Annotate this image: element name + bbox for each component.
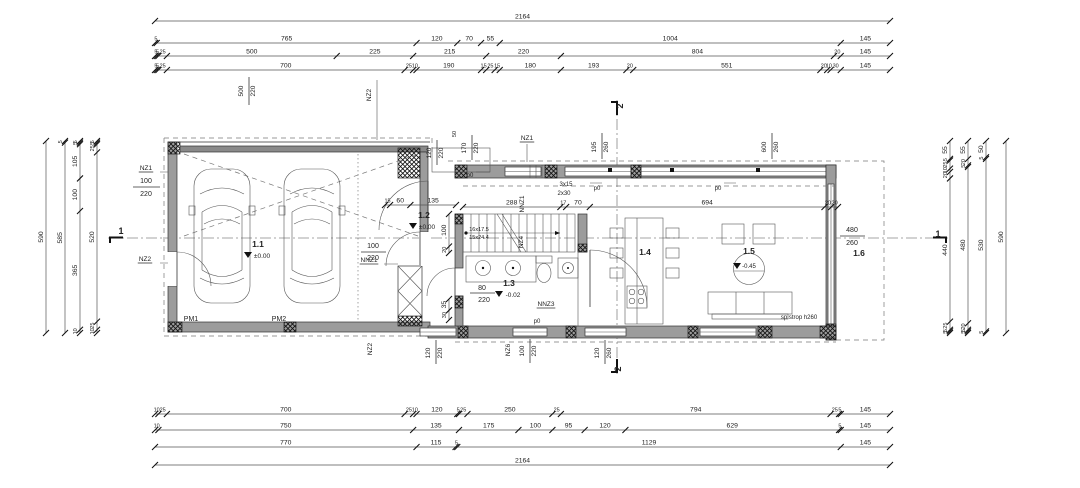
room-label-garage: 1.1 (252, 239, 264, 249)
plan-label: 220 (438, 147, 445, 158)
dim-label: 105 (72, 155, 79, 167)
step-note: 3x15 (559, 182, 573, 188)
dim-label: 135 (428, 198, 440, 205)
dim-label: 5 (58, 140, 64, 143)
dim-label: 480 (960, 239, 967, 251)
dim-label: 5 (838, 424, 841, 430)
dim-label: 145 (860, 49, 872, 56)
section-mark-2-top: 2 (615, 103, 625, 108)
parking-label-2: PM2 (272, 316, 287, 323)
dim-label: 288 (506, 200, 518, 207)
ceiling-note: sp.strop h260 (781, 315, 818, 321)
plan-label: 220 (473, 142, 480, 153)
room-level: ±0.00 (254, 253, 271, 260)
dim-label: 700 (280, 63, 292, 70)
chair (666, 248, 679, 258)
dim-label: 25 (90, 323, 96, 329)
dim-label: 5 (455, 441, 458, 447)
dim-label: 215 (444, 49, 456, 56)
dim-label: 25 (554, 408, 560, 414)
plan-label: 220 (478, 297, 490, 304)
plan-label: 220 (140, 191, 152, 198)
dim-label: 20 (943, 172, 949, 178)
dim-label: 35 (441, 301, 448, 309)
dim-label: 590 (998, 231, 1005, 243)
floor-plan-canvas: 2164576512070551004145552550022521522080… (0, 0, 1080, 488)
dim-label: 585 (57, 232, 64, 244)
dim-label: 25 (160, 408, 166, 414)
dim-label: 5 (154, 37, 157, 43)
dim-label: 145 (860, 63, 872, 70)
plan-label: 220 (437, 347, 444, 358)
opening-label-nz1-top: NZ1 (521, 135, 534, 142)
plan-label: 120 (594, 347, 601, 358)
dim-label: 750 (280, 423, 292, 430)
opening-label-nz1-left: NZ1 (140, 165, 153, 172)
dim-label: 551 (721, 63, 733, 70)
step-note: 2x30 (557, 191, 571, 197)
chair (610, 228, 623, 238)
dim-label: 55 (487, 36, 495, 43)
bath-counter (466, 256, 536, 282)
dim-label: 25 (90, 145, 96, 151)
door-swing-bath (427, 268, 455, 296)
dim-label: 20 (825, 201, 831, 207)
car-2 (279, 169, 345, 303)
dim-label: 120 (431, 407, 443, 414)
dim-label: 1004 (663, 36, 678, 43)
plan-label: 480 (846, 227, 858, 234)
dim-label: 520 (89, 231, 96, 243)
room-label-entry: 1.2 (418, 210, 430, 220)
plan-label: 100 (367, 243, 379, 250)
dim-label: 25 (943, 323, 949, 329)
level-mark: p0 (534, 319, 541, 325)
dim-label: 50 (978, 145, 985, 153)
dim-label: 15 (384, 199, 390, 205)
dim-label: 145 (860, 440, 872, 447)
dim-label: 100 (441, 224, 448, 236)
plan-label: 260 (773, 141, 780, 152)
dim-label: 30 (833, 64, 839, 70)
dim-label: 10 (412, 408, 418, 414)
level-mark: p0 (715, 186, 722, 192)
dim-label: 530 (978, 239, 985, 251)
plan-label: 500 (238, 85, 245, 96)
floor-plan-svg: 2164576512070551004145552550022521522080… (0, 0, 1080, 488)
plan-label: 220 (531, 345, 538, 356)
plan-label: 600 (761, 141, 768, 152)
dim-label: 175 (483, 423, 495, 430)
toilet (537, 264, 551, 283)
opening-label-nz4: NZ4 (518, 235, 525, 248)
chair (666, 228, 679, 238)
dim-label: 25 (460, 408, 466, 414)
column-nnz1 (398, 266, 422, 316)
dim-label: 5 (90, 142, 96, 145)
dim-label: 15 (481, 64, 487, 70)
dim-label: 2164 (515, 458, 530, 465)
dim-label: 804 (692, 49, 704, 56)
parking-label-1: PM1 (184, 316, 199, 323)
dim-label: 15 (494, 64, 500, 70)
dim-label: 1129 (642, 440, 657, 447)
stair-note: 15x24.4 (469, 235, 489, 241)
dim-label: 60 (396, 198, 404, 205)
dim-label: 95 (565, 423, 573, 430)
dim-label: 5 (979, 331, 985, 334)
dim-label: 770 (280, 440, 292, 447)
dim-label: 180 (525, 63, 537, 70)
room-level: -0.02 (506, 292, 521, 299)
plan-label: 50 (452, 131, 458, 137)
dim-label: 629 (727, 423, 739, 430)
plan-label: 80 (478, 285, 486, 292)
plan-label: 260 (603, 141, 610, 152)
room-label-dining: 1.4 (639, 247, 651, 257)
dim-label: 10 (412, 64, 418, 70)
level-mark: p0 (594, 186, 601, 192)
dim-label: 500 (246, 49, 258, 56)
plan-label: 220 (367, 255, 379, 262)
plan-label: 220 (250, 85, 257, 96)
plan-label: 170 (461, 142, 468, 153)
room-label-bath: 1.3 (503, 278, 515, 288)
dim-label: 2164 (515, 14, 530, 21)
level-flag (244, 223, 741, 297)
dim-label: 250 (504, 407, 516, 414)
dim-label: 70 (465, 36, 473, 43)
opening-label-nz6: NZ6 (505, 343, 512, 356)
opening-label-nz2-top: NZ2 (366, 88, 373, 101)
annotation-lines (133, 77, 865, 364)
plan-label: 260 (846, 240, 858, 247)
dim-label: 145 (860, 407, 872, 414)
dim-label: 135 (430, 423, 442, 430)
dim-label: 5 (838, 408, 841, 414)
dim-label: 225 (369, 49, 381, 56)
dim-label: 5 (943, 158, 949, 161)
opening-label-nnz3: NNZ3 (538, 301, 555, 308)
dim-label: 100 (72, 189, 79, 201)
dim-label: 30 (442, 312, 448, 318)
dim-label: 25 (160, 50, 166, 56)
plan-label: 100 (519, 345, 526, 356)
dim-label: 25 (943, 162, 949, 168)
dim-label: 25 (832, 408, 838, 414)
garage-door-swing (184, 154, 418, 236)
room-level: ±0.00 (419, 224, 436, 231)
dim-label: 120 (431, 36, 443, 43)
dim-label: 220 (518, 49, 530, 56)
room-label-living: 1.5 (743, 246, 755, 256)
door-swing-living (590, 250, 647, 307)
dim-label: 794 (690, 407, 702, 414)
dim-label: 145 (860, 423, 872, 430)
door-swing-nnz1 (386, 232, 420, 266)
room-label-terrace: 1.6 (853, 248, 865, 258)
dim-label: 590 (38, 231, 45, 243)
dim-label: 20 (627, 64, 633, 70)
dim-label: 10 (826, 64, 832, 70)
dim-label: 10 (90, 328, 96, 334)
dim-label: 694 (701, 200, 713, 207)
room-level: -0.45 (742, 264, 756, 270)
opening-label-nz2-left: NZ2 (139, 256, 152, 263)
dim-label: 100 (530, 423, 542, 430)
dim-label: 55 (960, 146, 967, 154)
section-mark-2-bottom: 2 (613, 366, 623, 371)
dim-label: 145 (860, 36, 872, 43)
dim-label: 365 (72, 264, 79, 276)
dim-label: 5 (979, 157, 985, 160)
sofa (708, 292, 792, 314)
plan-label: 260 (606, 347, 613, 358)
section-mark-1-right: 1 (935, 229, 940, 239)
plan-label: 195 (591, 141, 598, 152)
dim-label: 17 (560, 201, 566, 207)
dim-label: 765 (281, 36, 293, 43)
chair (610, 268, 623, 278)
dim-label: 25 (487, 64, 493, 70)
chair (666, 268, 679, 278)
dim-label: 700 (280, 407, 292, 414)
dim-label: 5 (943, 331, 949, 334)
dim-label: 20 (961, 159, 967, 165)
dim-label: 193 (588, 63, 600, 70)
dim-label: 190 (443, 63, 455, 70)
armchair-1 (722, 224, 744, 244)
dim-label: 115 (431, 440, 442, 447)
dim-label: 20 (834, 50, 840, 56)
opening-label-nz2-bottom: NZ2 (367, 342, 374, 355)
dim-label: 25 (160, 64, 166, 70)
car-1 (189, 169, 255, 303)
dim-label: 440 (942, 244, 949, 256)
plan-label: 120 (425, 347, 432, 358)
opening-label-nnz1-mid: NNZ1 (519, 195, 526, 212)
dim-label: 10 (73, 328, 79, 334)
dim-label: 120 (599, 423, 611, 430)
garage-structure (167, 142, 430, 332)
dim-label: 5 (961, 331, 967, 334)
plan-label: 100 (140, 178, 152, 185)
dim-label: 5 (961, 165, 967, 168)
dim-label: 20 (832, 201, 838, 207)
garage-door-band (180, 146, 428, 152)
armchair-2 (753, 224, 775, 244)
dim-label: 70 (574, 200, 582, 207)
dim-label: 20 (442, 247, 448, 253)
dim-label: 20 (961, 323, 967, 329)
stair-note: 16x17.5 (469, 227, 489, 233)
level-mark: p0 (467, 173, 474, 179)
section-mark-1-left: 1 (118, 226, 123, 236)
dim-label: 5 (73, 142, 79, 145)
dim-label: 10 (154, 424, 160, 430)
plan-label: 120 (426, 147, 433, 158)
dim-label: 55 (942, 146, 949, 154)
